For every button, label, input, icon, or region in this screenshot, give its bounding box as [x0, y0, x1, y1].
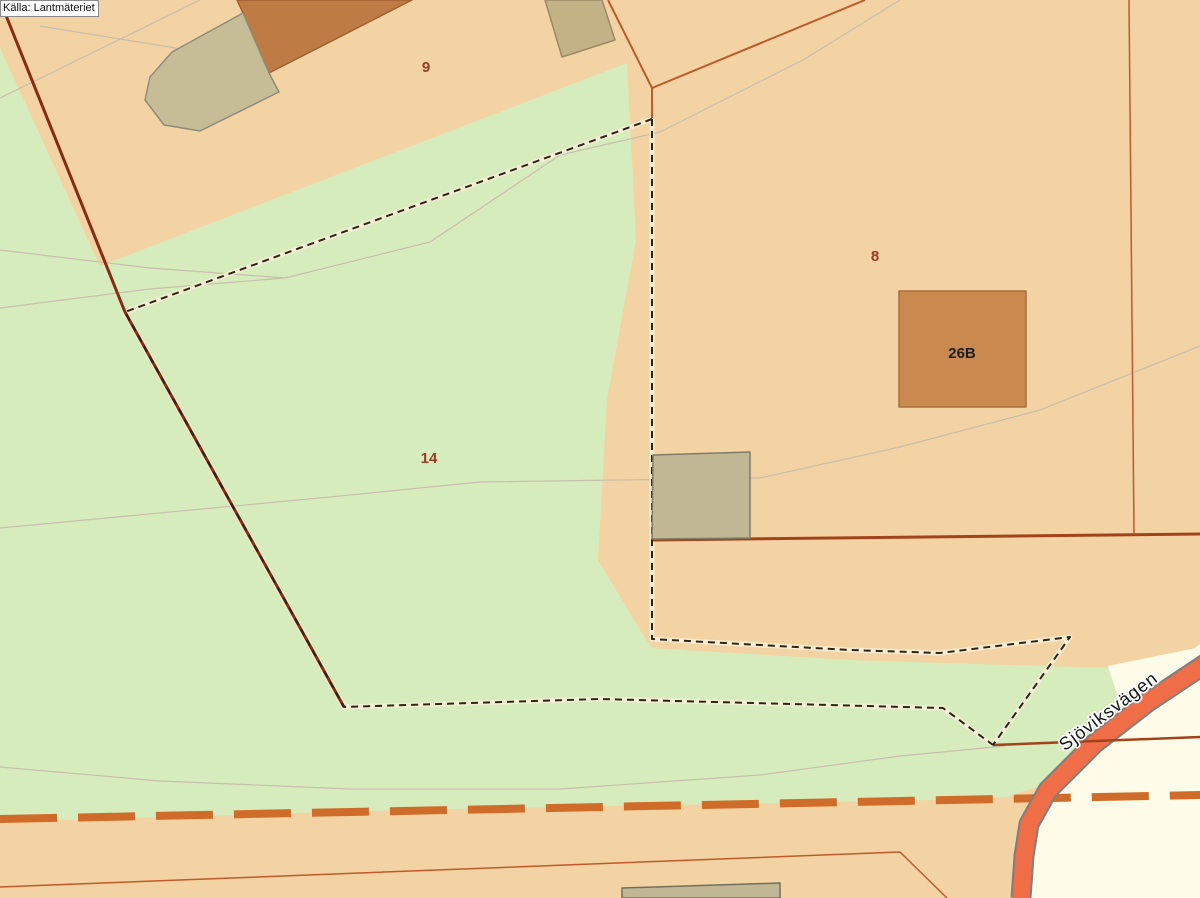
building-khaki-middle	[652, 452, 750, 539]
parcel-label-14: 14	[421, 450, 438, 467]
building-label-26b: 26B	[948, 345, 976, 362]
map-source-label: Källa: Lantmäteriet	[3, 2, 95, 14]
map-source-attribution: Källa: Lantmäteriet	[0, 0, 99, 17]
cadastral-map-canvas[interactable]: 981426BSjöviksvägen	[0, 0, 1200, 898]
parcel-label-9: 9	[422, 59, 430, 76]
parcel-label-8: 8	[871, 248, 879, 265]
map-viewport[interactable]: 981426BSjöviksvägen Källa: Lantmäteriet	[0, 0, 1200, 898]
